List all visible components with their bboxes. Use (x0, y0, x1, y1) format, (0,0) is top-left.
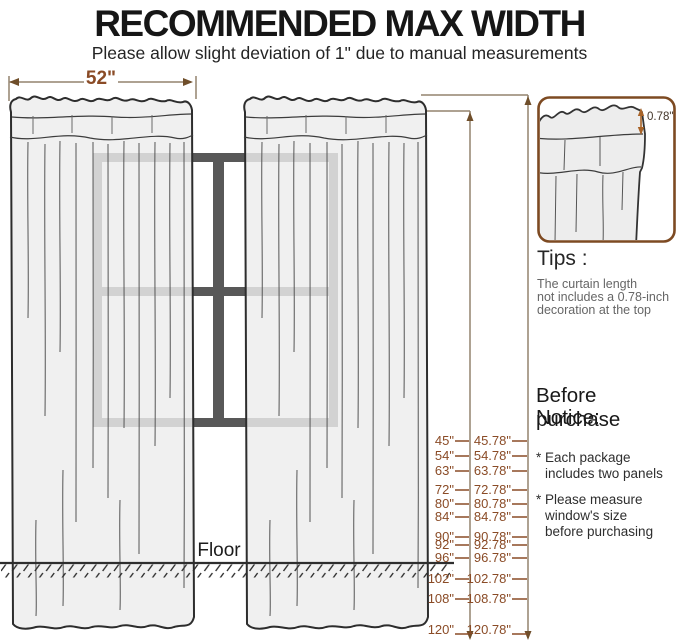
notice-bullet-line: before purchasing (545, 524, 653, 539)
total-length-label: 120.78" (454, 622, 511, 637)
tips-text-line: decoration at the top (537, 303, 651, 317)
left-curtain-panel (10, 96, 194, 628)
notice-bullet-line: * Please measure (536, 492, 643, 507)
length-label: 72" (398, 482, 454, 497)
diagram-artwork (0, 0, 679, 643)
total-length-label: 72.78" (454, 482, 511, 497)
notice-bullet-line: includes two panels (545, 466, 663, 481)
total-length-label: 102.78" (454, 571, 511, 586)
length-label: 45" (398, 433, 454, 448)
inset-curtain-drawing (534, 105, 645, 246)
tips-heading: Tips : (537, 247, 588, 271)
panel-width-label: 52" (70, 68, 132, 90)
floor-line (0, 563, 454, 578)
length-label: 102" (398, 571, 454, 586)
floor-hatching (1, 565, 453, 578)
tips-text-line: The curtain length (537, 277, 637, 291)
length-label: 84" (398, 509, 454, 524)
length-label: 120" (398, 622, 454, 637)
total-length-label: 84.78" (454, 509, 511, 524)
length-label: 96" (398, 550, 454, 565)
length-label: 54" (398, 448, 454, 463)
length-label: 108" (398, 591, 454, 606)
notice-bullet-line: * Each package (536, 450, 631, 465)
decoration-height-label: 0.78" (647, 111, 673, 123)
page-title: RECOMMENDED MAX WIDTH (0, 3, 679, 45)
total-length-label: 96.78" (454, 550, 511, 565)
tips-text-line: not includes a 0.78-inch (537, 290, 669, 304)
curtain-size-infographic: RECOMMENDED MAX WIDTH Please allow sligh… (0, 0, 679, 643)
page-subtitle: Please allow slight deviation of 1" due … (0, 43, 679, 64)
total-length-label: 63.78" (454, 463, 511, 478)
floor-label: Floor (191, 540, 247, 562)
total-length-label: 108.78" (454, 591, 511, 606)
length-label: 63" (398, 463, 454, 478)
notice-heading-line: Notice: (536, 406, 600, 430)
notice-bullet-line: window's size (545, 508, 627, 523)
total-length-label: 54.78" (454, 448, 511, 463)
total-length-label: 45.78" (454, 433, 511, 448)
